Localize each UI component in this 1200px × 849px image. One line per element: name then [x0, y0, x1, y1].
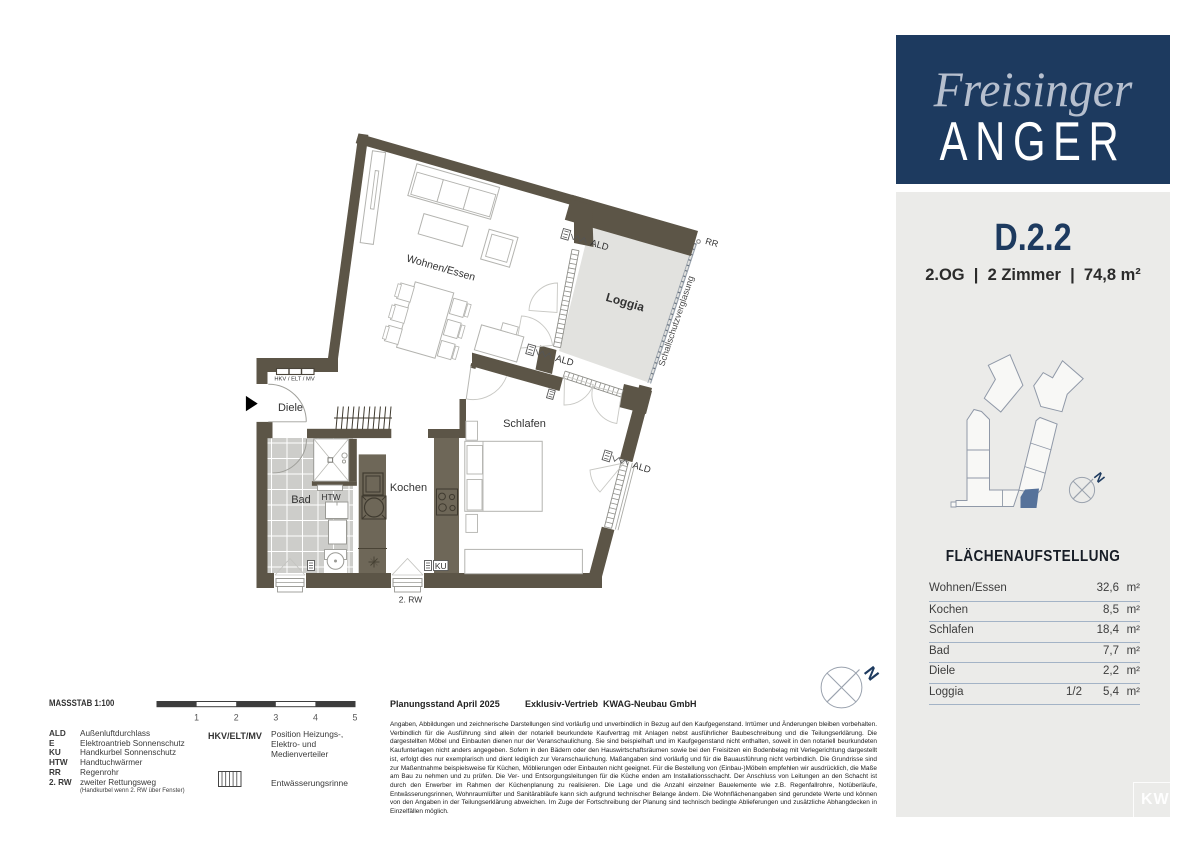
- svg-text:KU: KU: [435, 561, 447, 571]
- svg-text:4: 4: [313, 713, 318, 723]
- svg-text:2. RW: 2. RW: [399, 595, 422, 605]
- svg-text:Wohnen/Essen: Wohnen/Essen: [405, 253, 477, 284]
- svg-text:3: 3: [273, 713, 278, 723]
- svg-text:2: 2: [234, 713, 239, 723]
- svg-text:Schlafen: Schlafen: [503, 418, 546, 430]
- svg-text:N: N: [1091, 470, 1108, 486]
- svg-text:Diele: Diele: [278, 402, 303, 414]
- svg-text:Kochen: Kochen: [390, 482, 427, 494]
- svg-text:HKV / ELT / MV: HKV / ELT / MV: [274, 377, 315, 383]
- svg-text:5: 5: [353, 713, 358, 723]
- svg-text:HTW: HTW: [321, 492, 340, 502]
- svg-text:ALD: ALD: [554, 353, 575, 369]
- svg-text:ALD: ALD: [631, 460, 652, 476]
- svg-text:RR: RR: [704, 236, 720, 249]
- svg-text:Bad: Bad: [291, 494, 311, 506]
- svg-text:1: 1: [194, 713, 199, 723]
- svg-text:N: N: [860, 663, 883, 684]
